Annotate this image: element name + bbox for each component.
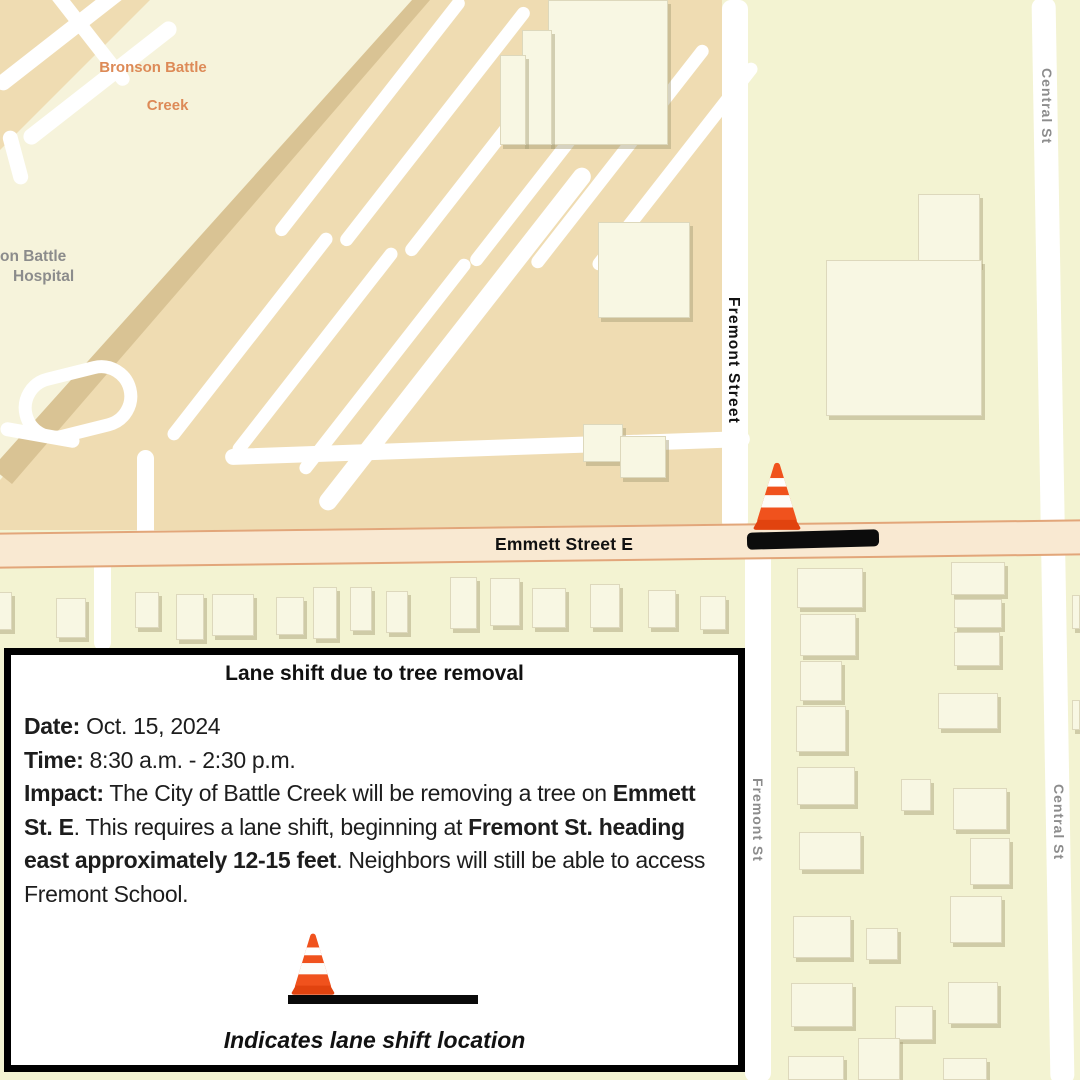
building-footprint: [796, 706, 846, 752]
building-footprint: [858, 1038, 900, 1080]
building-footprint: [799, 832, 861, 870]
building-footprint: [918, 194, 980, 266]
building-footprint: [450, 577, 477, 629]
building-footprint: [948, 982, 998, 1024]
building-footprint: [938, 693, 998, 729]
notice-line-value: 8:30 a.m. - 2:30 p.m.: [83, 747, 295, 773]
fremont-street-label: Fremont Street: [724, 297, 742, 467]
building-footprint: [800, 614, 856, 656]
notice-body: Date: Oct. 15, 2024Time: 8:30 a.m. - 2:3…: [24, 710, 725, 911]
building-footprint: [648, 590, 676, 628]
building-footprint: [866, 928, 898, 960]
building-footprint: [590, 584, 620, 628]
building-footprint: [350, 587, 372, 631]
notice-line-label: Time:: [24, 747, 83, 773]
notice-line: Time: 8:30 a.m. - 2:30 p.m.: [24, 744, 725, 778]
road-segment: [94, 556, 111, 651]
building-footprint: [56, 598, 86, 638]
building-footprint: [901, 779, 931, 811]
building-footprint: [0, 592, 12, 630]
fremont-st-south-label: Fremont St: [750, 778, 766, 888]
notice-line: Date: Oct. 15, 2024: [24, 710, 725, 744]
building-footprint: [953, 788, 1007, 830]
building-footprint: [1072, 700, 1080, 730]
legend-traffic-cone-icon: [287, 931, 339, 1001]
building-footprint: [943, 1058, 987, 1080]
impact-segment: . This requires a lane shift, beginning …: [74, 814, 469, 840]
building-footprint: [1072, 595, 1080, 629]
building-footprint: [793, 916, 851, 958]
building-footprint: [895, 1006, 933, 1040]
building-footprint: [788, 1056, 844, 1080]
building-footprint: [700, 596, 726, 630]
building-footprint: [176, 594, 204, 640]
building-footprint: [954, 599, 1002, 628]
notice-box: Lane shift due to tree removal Date: Oct…: [4, 648, 745, 1072]
central-st-south-label: Central St: [1051, 784, 1067, 894]
road-segment: [722, 0, 748, 530]
building-footprint: [826, 260, 982, 416]
building-footprint: [797, 767, 855, 805]
impact-text: Impact: The City of Battle Creek will be…: [24, 777, 725, 911]
building-footprint: [276, 597, 304, 635]
building-footprint: [970, 838, 1010, 885]
impact-segment: The City of Battle Creek will be removin…: [104, 780, 613, 806]
building-footprint: [212, 594, 254, 636]
building-footprint: [490, 578, 520, 626]
legend-caption: Indicates lane shift location: [11, 1027, 738, 1054]
building-footprint: [386, 591, 408, 633]
building-footprint: [800, 661, 842, 701]
lane-shift-flyer: Bronson Battle Creek on Battle Hospital …: [0, 0, 1080, 1080]
impact-segment: Impact:: [24, 780, 104, 806]
building-footprint: [313, 587, 337, 639]
notice-line-value: Oct. 15, 2024: [80, 713, 220, 739]
building-footprint: [954, 632, 1000, 666]
building-footprint: [135, 592, 159, 628]
building-footprint: [791, 983, 853, 1027]
notice-line-label: Date:: [24, 713, 80, 739]
building-footprint: [797, 568, 863, 608]
central-st-north-label: Central St: [1039, 68, 1055, 178]
building-footprint: [951, 562, 1005, 595]
road-segment: [745, 528, 771, 1080]
building-footprint: [532, 588, 566, 628]
notice-lines: Date: Oct. 15, 2024Time: 8:30 a.m. - 2:3…: [24, 710, 725, 777]
notice-title: Lane shift due to tree removal: [11, 662, 738, 686]
building-footprint: [950, 896, 1002, 943]
